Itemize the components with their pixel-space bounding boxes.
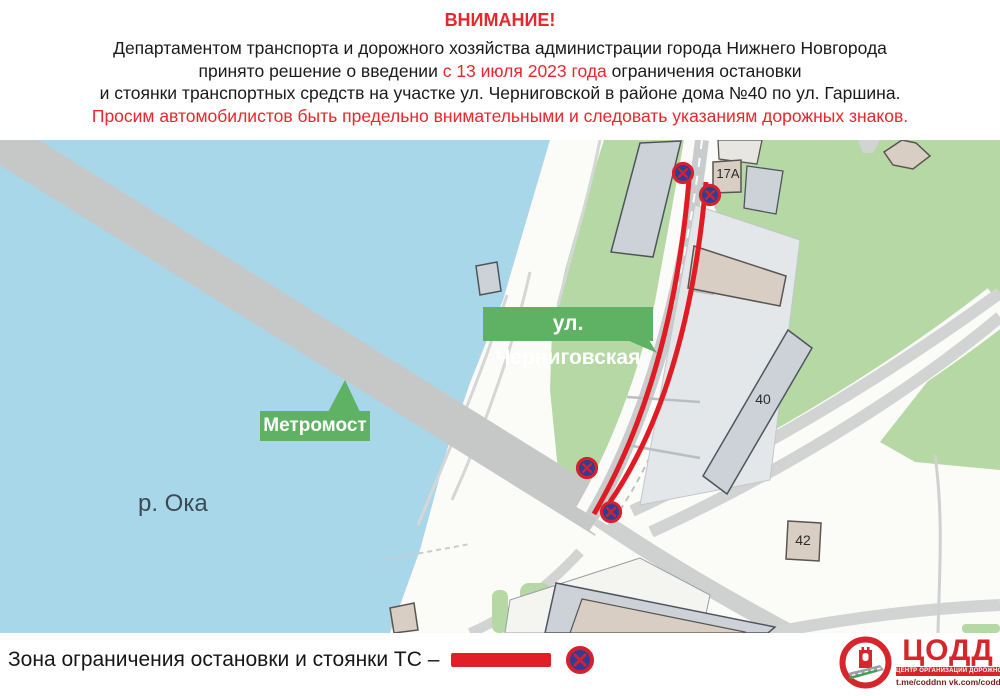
codd-title: ЦОДД	[896, 636, 1000, 666]
codd-links: t.me/coddnn vk.com/coddnn52	[896, 677, 1000, 687]
codd-logo: ЦОДД ЦЕНТР ОРГАНИЗАЦИИ ДОРОЖНОГО ДВИЖЕНИ…	[839, 636, 1000, 689]
line2-prefix: принято решение о введении	[199, 61, 443, 81]
building-cluster-gray	[744, 166, 783, 214]
building-bottom-left	[390, 603, 418, 633]
header-line-4: Просим автомобилистов быть предельно вни…	[0, 105, 1000, 128]
building-number-42: 42	[789, 532, 817, 548]
header-line-1: Департаментом транспорта и дорожного хоз…	[0, 37, 1000, 60]
no-stopping-sign-icon	[578, 459, 597, 478]
codd-subtitle: ЦЕНТР ОРГАНИЗАЦИИ ДОРОЖНОГО ДВИЖЕНИЯ	[896, 667, 1000, 676]
legend-label: Зона ограничения остановки и стоянки ТС …	[8, 648, 439, 672]
green-corner	[962, 624, 1000, 633]
building-number-17a: 17А	[712, 166, 744, 181]
codd-text-block: ЦОДД ЦЕНТР ОРГАНИЗАЦИИ ДОРОЖНОГО ДВИЖЕНИ…	[896, 636, 1000, 689]
river-name-label: р. Ока	[138, 490, 208, 518]
legend: Зона ограничения остановки и стоянки ТС …	[8, 644, 594, 676]
building-number-40: 40	[749, 391, 777, 407]
building-shore-small	[476, 262, 501, 295]
header-line-3: и стоянки транспортных средств на участк…	[0, 82, 1000, 105]
map: ул. Черниговская Метромост р. Ока 17А 40…	[0, 140, 1000, 633]
line2-date-highlight: с 13 июля 2023 года	[443, 61, 607, 81]
map-graphic	[0, 140, 1000, 633]
street-name-label: ул. Черниговская	[483, 307, 653, 341]
no-stopping-sign-icon	[701, 186, 720, 205]
bridge-name-label: Метромост	[260, 411, 370, 441]
no-stopping-sign-icon	[602, 503, 621, 522]
header-title: ВНИМАНИЕ!	[0, 10, 1000, 31]
header-line-2: принято решение о введении с 13 июля 202…	[0, 60, 1000, 83]
legend-red-line-swatch	[451, 653, 551, 667]
no-stopping-sign-icon	[674, 164, 693, 183]
line2-suffix: ограничения остановки	[607, 61, 802, 81]
announcement-poster: ВНИМАНИЕ! Департаментом транспорта и дор…	[0, 0, 1000, 696]
no-stopping-sign-icon	[566, 646, 594, 674]
codd-emblem-icon	[839, 636, 892, 689]
header: ВНИМАНИЕ! Департаментом транспорта и дор…	[0, 10, 1000, 127]
